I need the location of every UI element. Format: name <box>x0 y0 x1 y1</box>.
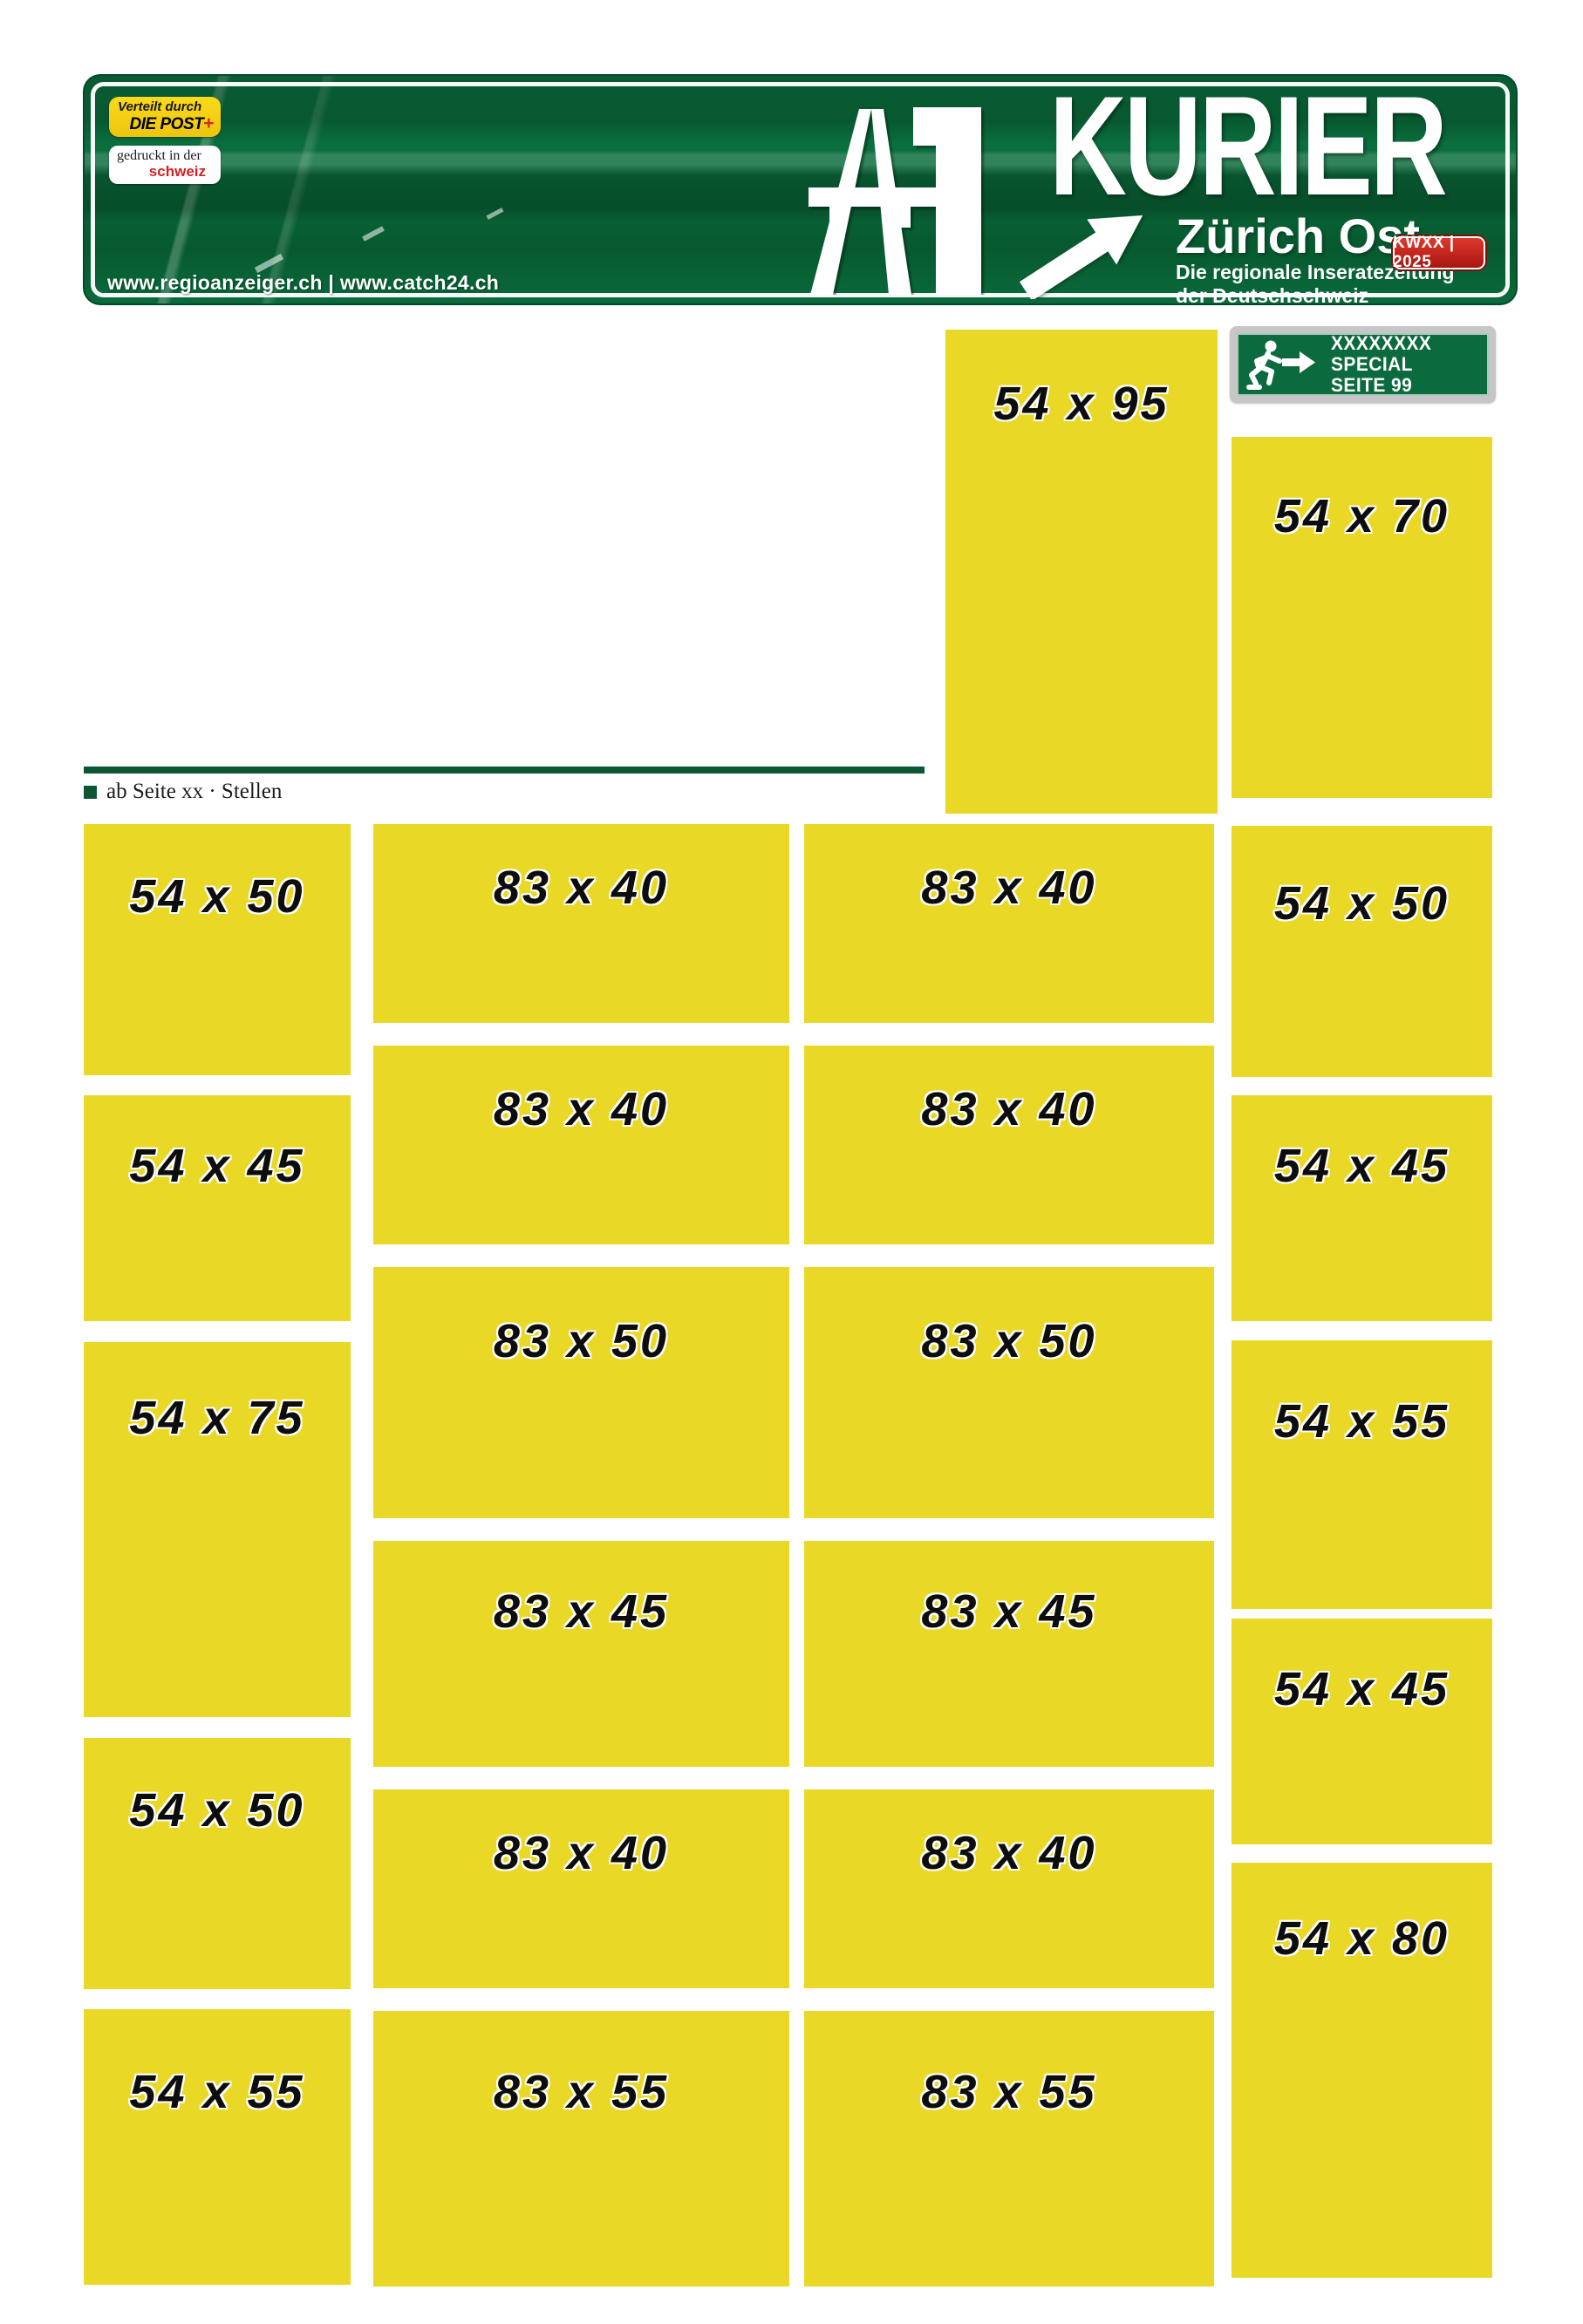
special-section-sign: XXXXXXXX SPECIAL SEITE 99 <box>1230 326 1496 403</box>
ad-slot-size-label: 83 x 40 <box>373 1086 789 1133</box>
swiss-post-cross-icon: + <box>203 113 214 133</box>
running-man-icon <box>1237 338 1331 391</box>
special-sign-text: XXXXXXXX SPECIAL SEITE 99 <box>1331 333 1431 396</box>
post-distribution-badge: Verteilt durch DIE POST+ <box>109 97 221 137</box>
ad-slot-size-label: 83 x 40 <box>804 1086 1214 1133</box>
ad-slot-size-label: 54 x 45 <box>1232 1142 1492 1189</box>
calendar-week-badge: KWXX | 2025 <box>1393 236 1485 269</box>
ad-slot: 54 x 50 <box>84 824 351 1075</box>
road-lane-dash <box>362 226 385 242</box>
ad-slot: 54 x 70 <box>1232 437 1492 798</box>
ad-slot-size-label: 83 x 50 <box>373 1318 789 1365</box>
ad-slot: 83 x 55 <box>373 2011 789 2287</box>
ad-slot: 54 x 55 <box>1232 1340 1492 1609</box>
ad-slot: 54 x 50 <box>1232 826 1492 1077</box>
post-badge-line1: Verteilt durch <box>118 100 214 114</box>
ad-slot: 54 x 75 <box>84 1342 351 1717</box>
ad-slot-size-label: 83 x 50 <box>804 1318 1214 1365</box>
ad-slot-size-label: 54 x 55 <box>1232 1398 1492 1445</box>
ad-slot-size-label: 83 x 45 <box>804 1588 1214 1635</box>
masthead-title: KURIER <box>1049 76 1445 217</box>
ad-slot: 54 x 55 <box>84 2009 351 2285</box>
ad-slot: 83 x 40 <box>804 1046 1214 1244</box>
print-badge-line2: schweiz <box>117 164 213 181</box>
section-divider-rule <box>84 767 925 774</box>
ad-slot: 83 x 40 <box>373 824 789 1023</box>
ad-slot: 54 x 80 <box>1232 1863 1492 2278</box>
post-badge-line2: DIE POST+ <box>118 114 214 133</box>
ad-layout-page: Verteilt durch DIE POST+ gedruckt in der… <box>0 0 1583 2324</box>
ad-slot-size-label: 83 x 40 <box>804 1830 1214 1877</box>
ad-slot: 83 x 40 <box>373 1046 789 1244</box>
ad-slot: 83 x 55 <box>804 2011 1214 2287</box>
ad-slot-size-label: 83 x 40 <box>373 1830 789 1877</box>
ad-slot-size-label: 83 x 55 <box>804 2068 1214 2116</box>
website-urls: www.regioanzeiger.ch | www.catch24.ch <box>107 271 499 295</box>
ad-slot-size-label: 54 x 75 <box>84 1394 351 1441</box>
special-sign-line1: XXXXXXXX <box>1331 333 1431 354</box>
ad-slot-size-label: 54 x 50 <box>84 873 351 920</box>
ad-slot: 83 x 45 <box>373 1541 789 1767</box>
ad-slot: 54 x 50 <box>84 1738 351 1989</box>
motorway-icon <box>809 90 987 295</box>
ad-slot-size-label: 54 x 95 <box>945 380 1218 427</box>
direction-arrow-icon <box>1018 205 1168 299</box>
special-sign-line3: SEITE 99 <box>1331 375 1431 396</box>
special-sign-line2: SPECIAL <box>1331 354 1431 375</box>
ad-slot: 83 x 45 <box>804 1541 1214 1767</box>
road-lane-dash <box>255 254 283 273</box>
ad-slot: 54 x 45 <box>1232 1619 1492 1844</box>
print-badge-line1: gedruckt in der <box>117 148 213 164</box>
road-lane-dash <box>486 208 503 220</box>
ad-slot: 83 x 50 <box>373 1267 789 1518</box>
ad-slot-size-label: 54 x 55 <box>84 2068 351 2116</box>
ad-slot-size-label: 54 x 50 <box>1232 880 1492 927</box>
ad-slot-size-label: 54 x 45 <box>1232 1666 1492 1713</box>
ad-slot-size-label: 83 x 55 <box>373 2068 789 2116</box>
ad-slot-size-label: 83 x 45 <box>373 1588 789 1635</box>
printed-in-switzerland-badge: gedruckt in der schweiz <box>109 146 221 184</box>
section-note: ab Seite xx · Stellen <box>84 780 282 804</box>
ad-slot: 83 x 40 <box>804 1789 1214 1988</box>
ad-slot-size-label: 54 x 70 <box>1232 493 1492 540</box>
ad-slot-size-label: 54 x 80 <box>1232 1915 1492 1962</box>
masthead-banner: Verteilt durch DIE POST+ gedruckt in der… <box>83 74 1518 305</box>
ad-slot: 83 x 40 <box>373 1789 789 1988</box>
ad-slot-size-label: 54 x 45 <box>84 1142 351 1189</box>
ad-slot: 83 x 40 <box>804 824 1214 1023</box>
banner-subtitle-line2: der Deutschschweiz <box>1176 284 1455 305</box>
ad-slot: 54 x 45 <box>84 1095 351 1321</box>
ad-slot-size-label: 83 x 40 <box>804 864 1214 911</box>
ad-slot-size-label: 54 x 50 <box>84 1787 351 1834</box>
ad-slot: 54 x 95 <box>945 330 1218 814</box>
ad-slot: 83 x 50 <box>804 1267 1214 1518</box>
section-note-text: ab Seite xx · Stellen <box>106 780 282 804</box>
region-name: Zürich Ost <box>1176 212 1420 261</box>
ad-slot: 54 x 45 <box>1232 1095 1492 1321</box>
ad-slot-size-label: 83 x 40 <box>373 864 789 911</box>
section-bullet-icon <box>84 786 97 799</box>
